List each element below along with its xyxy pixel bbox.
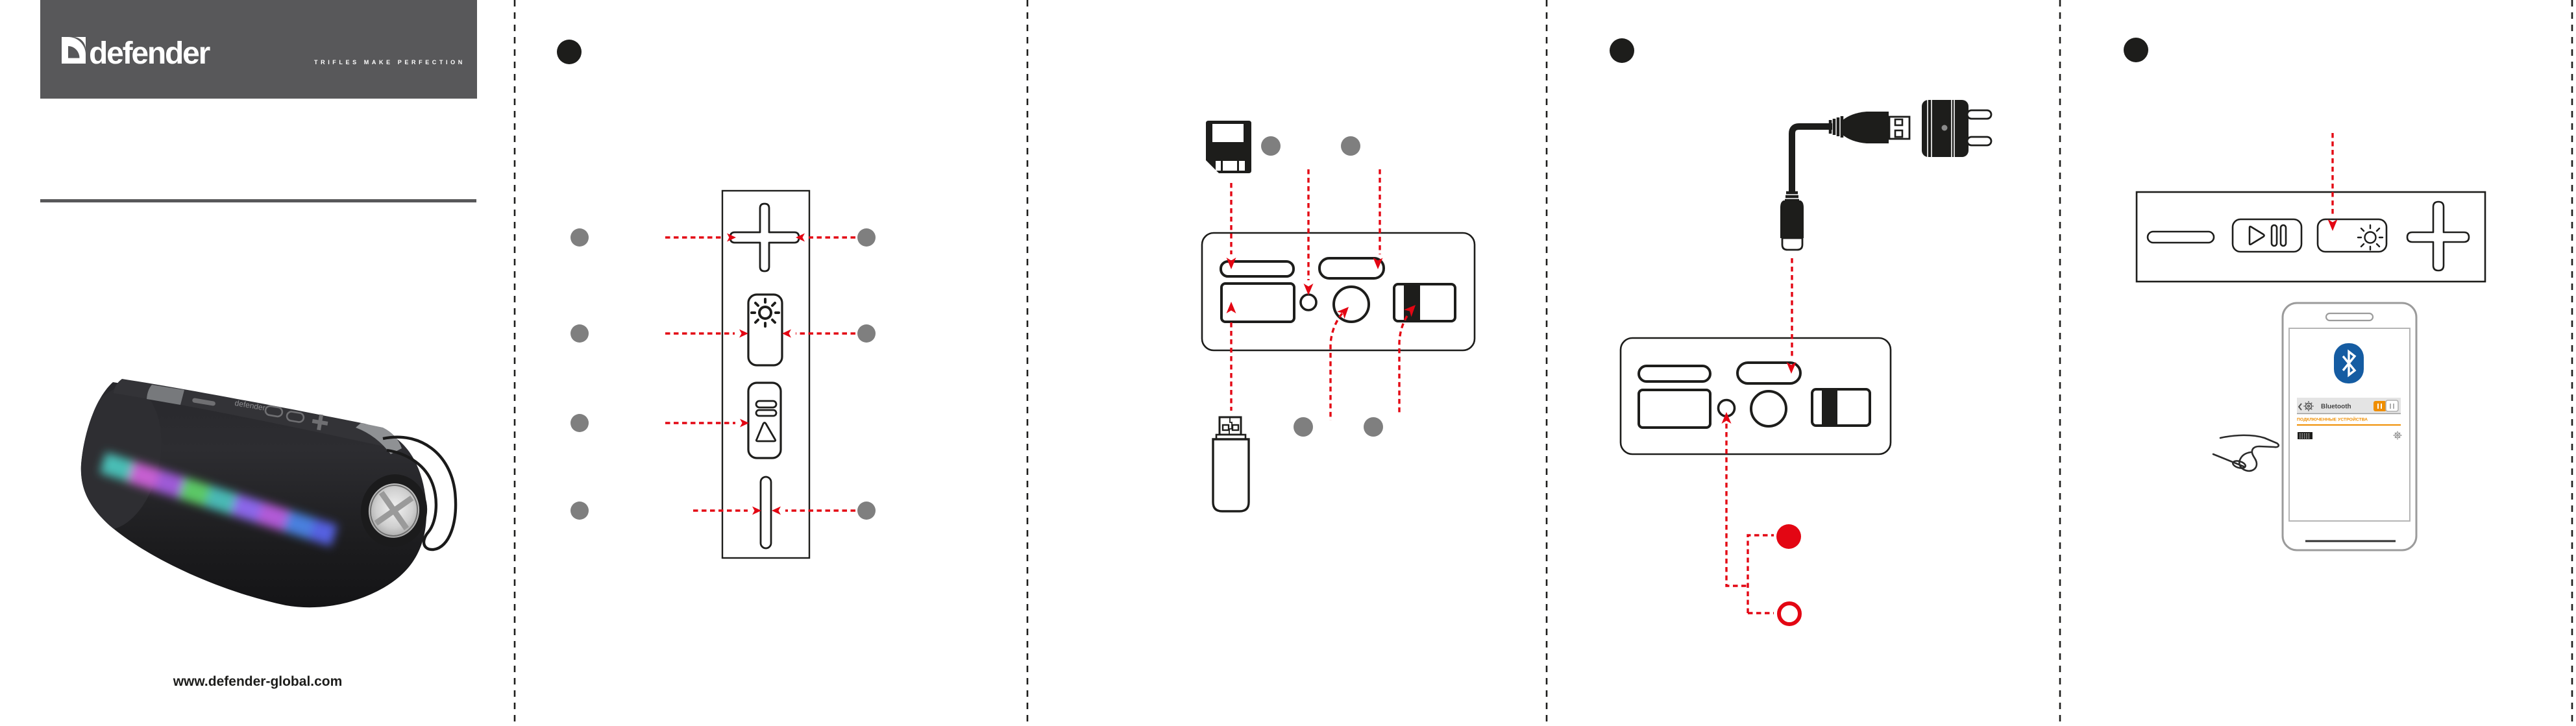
svg-text:TRIFLES MAKE PERFECTION: TRIFLES MAKE PERFECTION <box>314 59 465 66</box>
svg-text:Bluetooth: Bluetooth <box>2321 404 2351 411</box>
svg-text:defender: defender <box>89 36 210 71</box>
svg-text:ПОДКЛЮЧЕННЫЕ УСТРОЙСТВА: ПОДКЛЮЧЕННЫЕ УСТРОЙСТВА <box>2297 417 2368 422</box>
svg-text:www.defender-global.com: www.defender-global.com <box>173 674 343 689</box>
